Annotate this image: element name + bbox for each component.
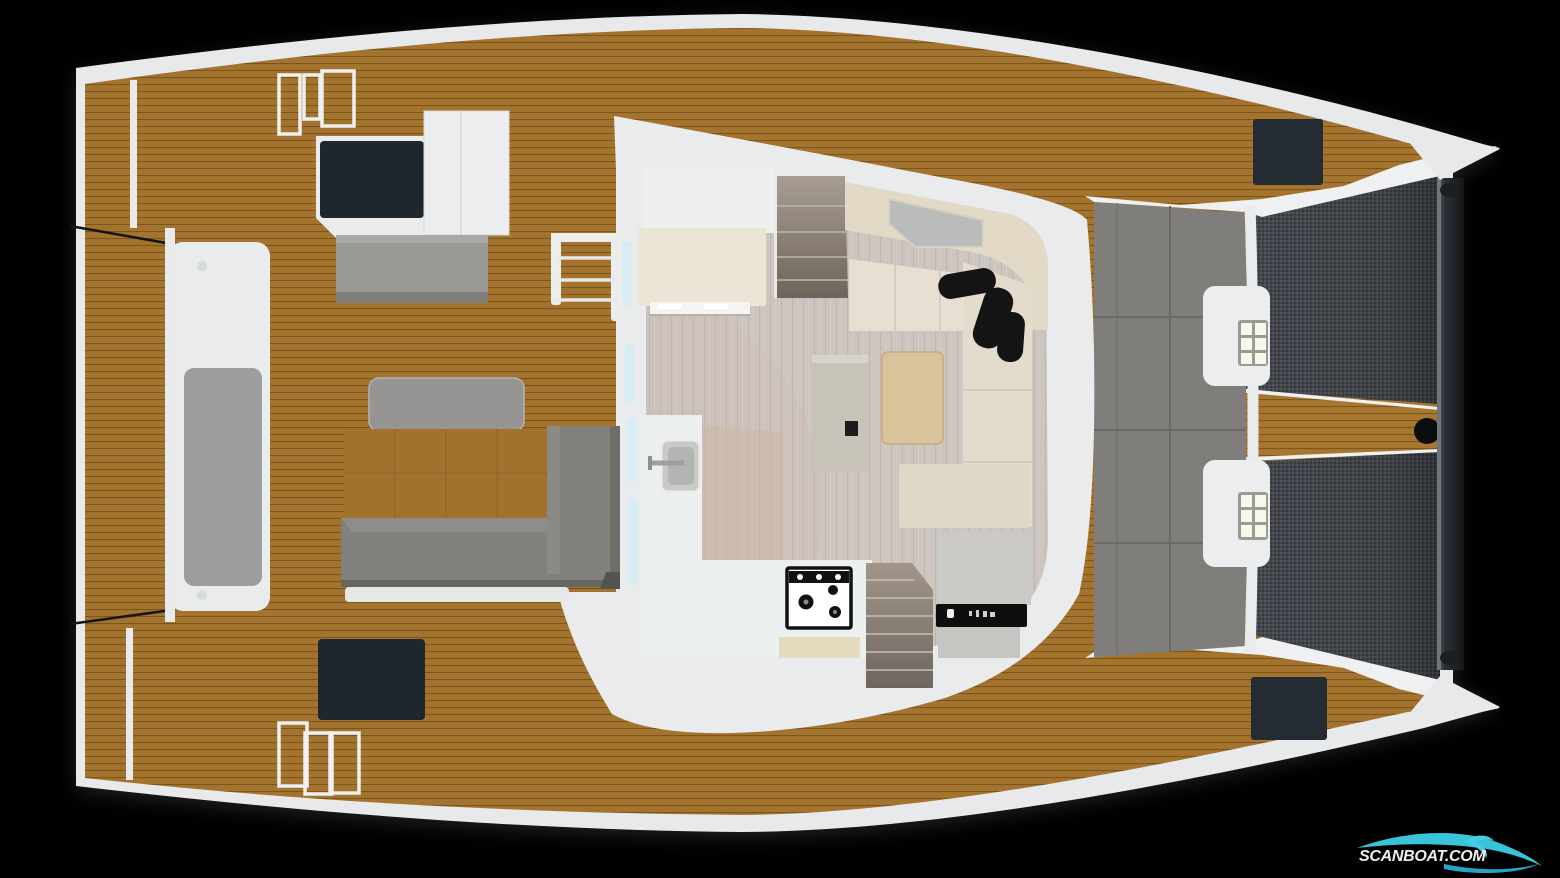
svg-text:SCANBOAT.COM: SCANBOAT.COM bbox=[1359, 848, 1486, 865]
